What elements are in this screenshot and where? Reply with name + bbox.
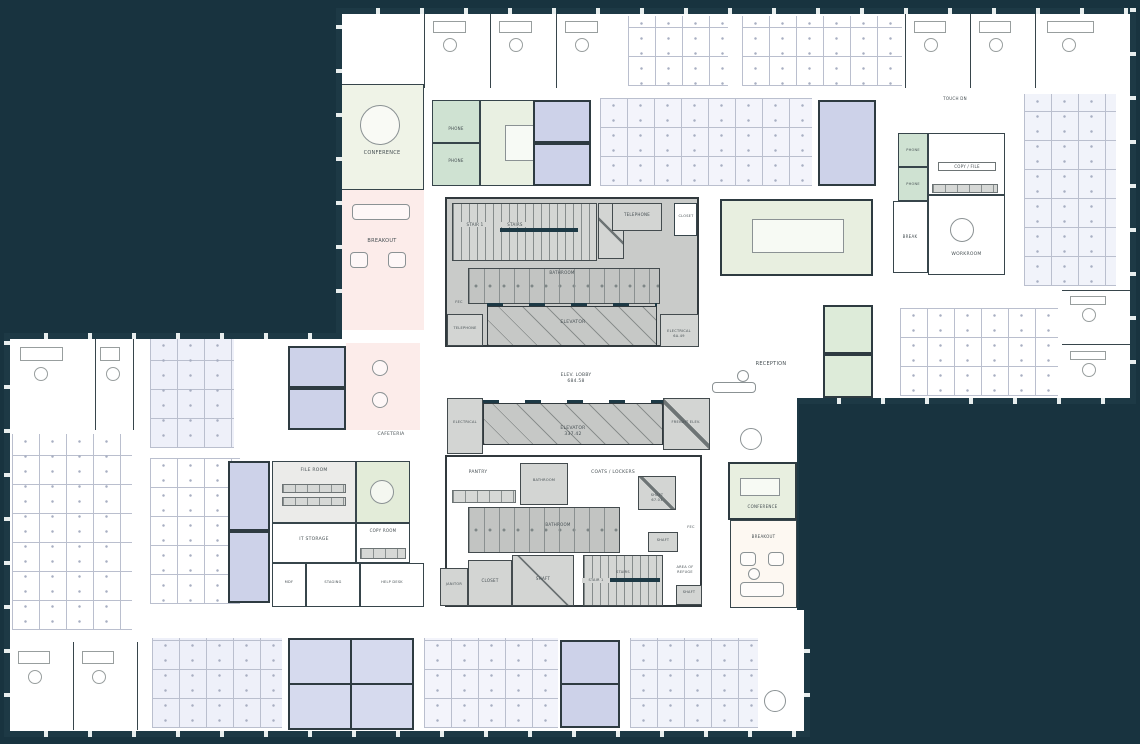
zone-cafeteria [346,343,420,430]
label-stair1-upper: STAIR 1 [458,222,492,227]
label-breakout-tl: BREAKOUT [340,238,424,245]
label-phone-4: PHONE [896,182,930,187]
label-shaft-se: SHAFT [672,590,706,595]
facade-right-upper [1130,8,1136,404]
desk-zone-right-col [1024,94,1116,286]
breakout-se-chair-2 [768,552,784,566]
desk-zone-top-a [628,16,728,86]
reception-sofa [712,382,756,393]
file-room-shelves-1 [282,484,346,493]
floor-plan-canvas: CONFERENCE BREAKOUT PHONE PHONE TOUCH DN… [0,0,1140,744]
label-shaft-large: SHAFT [512,576,574,581]
label-staging: STAGING [304,580,362,585]
room-shaft-se [676,585,702,605]
cafeteria-table-1 [372,360,388,376]
facade-top-left-wing [4,333,342,339]
label-fec-lower: FEC [682,525,700,530]
desk-zone-bottom-1 [152,638,282,728]
facade-top [336,8,1136,14]
bathroom-band-lower [468,507,620,553]
label-file-room: FILE ROOM [272,468,356,474]
office-bottom-left-2 [74,642,138,730]
label-electrical-west: ELECTRICAL [442,420,488,425]
stair-upper-landing [500,228,578,232]
label-workroom: WORKROOM [928,252,1005,258]
label-cafeteria: CAFETERIA [356,432,426,438]
label-reception: RECEPTION [740,361,802,368]
room-bathroom-small [520,463,568,505]
label-shaft-east: SHAFT [645,538,681,543]
label-closet-upper: CLOSET [671,214,701,219]
desk-zone-bottom-2 [424,638,558,728]
copy-room-counter [360,548,406,559]
label-help-desk: HELP DESK [358,580,426,585]
room-phone-2 [432,143,480,186]
desk-zone-left-edge [12,434,132,630]
reception-table [737,370,749,382]
desk-zone-right-low [900,308,1058,396]
office-top-6 [1035,14,1130,88]
desk-zone-mid-top [600,98,812,186]
label-mdf: MDF [270,580,308,585]
breakout-se-sofa [740,582,784,597]
pantry-counter [452,490,516,503]
label-elev-lobby: ELEV. LOBBY684.58 [536,361,616,397]
label-telephone-west: TELEPHONE [443,326,487,331]
table-bottom-right [764,690,786,712]
stair-upper [452,203,597,261]
desk-zone-bottom-3 [630,638,758,728]
conference-table-round [360,105,400,145]
facade-left-upper [336,8,342,333]
office-top-1 [424,14,490,88]
office-right-1 [1062,290,1132,344]
label-freight-elev: FREIGHT ELEV. [658,420,714,425]
room-janitor [440,568,468,606]
label-copy-room: COPY ROOM [353,528,413,533]
office-right-2 [1062,344,1132,400]
room-staging [306,563,360,607]
elevator-doors-lower [483,400,663,403]
label-fec-upper: FEC [450,300,468,305]
desk-zone-left-a [150,338,234,448]
room-mdf [272,563,306,607]
label-elevator-upper: ELEVATOR [528,320,618,326]
label-touch-dn: TOUCH DN [920,96,990,101]
label-stairs-upper: STAIRS [498,222,532,227]
label-elevator-lower: ELEVATOR337.42 [528,414,618,450]
file-room-shelves-2 [282,497,346,506]
office-block-wall-h [288,683,414,685]
label-bathroom-upper: BATHROOM [532,270,592,275]
label-phone-1: PHONE [432,126,480,131]
room-closet-upper [674,203,697,236]
room-phone-1 [432,100,480,143]
label-bathroom-lower: BATHROOM [528,522,588,527]
label-conference-se: CONFERENCE [728,504,797,509]
elevator-doors-upper [487,303,657,306]
label-coats-lockers: COATS / LOCKERS [570,470,656,476]
office-top-2 [490,14,556,88]
office-bottom-left-1 [10,642,74,730]
label-stair1-lower: STAIR 1 [582,578,610,583]
facade-right-lower [804,610,810,737]
breakout-se-chair-1 [740,552,756,566]
office-west-2 [96,338,134,430]
label-bathroom-small: BATHROOM [517,478,571,483]
label-conference-tl: CONFERENCE [340,150,424,157]
room-office-blue-caf-2 [288,388,346,430]
label-closet-lower: CLOSET [464,578,516,583]
label-pantry: PANTRY [450,470,506,476]
desk-zone-top-b [742,16,902,86]
breakout-sofa [352,204,410,220]
table-se-nook [740,428,762,450]
room-office-blue-caf-1 [288,346,346,388]
label-electrical-upper: ELECTRICAL6A.49 [657,320,701,348]
breakout-chair-1 [350,252,368,268]
facade-bottom-lower [4,731,810,737]
label-telephone-upper: TELEPHONE [610,212,664,217]
conference-se-table [740,478,780,496]
breakout-chair-2 [388,252,406,268]
label-shaft-ne: SHAFT67.01 [635,484,679,512]
facade-left-lower [4,333,10,737]
room-electrical-west [447,398,483,454]
office-top-3 [556,14,622,88]
label-phone-2: PHONE [432,158,480,163]
cafeteria-table-2 [372,392,388,408]
office-top-5 [970,14,1035,88]
label-copy-file: COPY / FILE [938,162,996,171]
label-stairs-lower: STAIRS [608,570,638,575]
room-office-blue-top-2 [533,143,591,186]
office-top-4 [905,14,970,88]
label-area-of-refuge: AREA OFREFUGE [662,556,708,584]
room-help-desk [360,563,424,607]
room-office-blue-top-1 [533,100,591,143]
workroom-table [950,218,974,242]
desk-zone-left-b [150,458,240,604]
room-office-blue-file-2 [228,531,270,603]
label-phone-3: PHONE [896,148,930,153]
breakout-se-table [748,568,760,580]
label-it-storage: IT STORAGE [272,537,356,543]
meeting-table-file [370,480,394,504]
room-office-blue-file-1 [228,461,270,531]
room-huddle-2 [823,354,873,398]
facade-bottom-right-wing [797,398,1136,404]
facade-notch [797,404,810,610]
room-office-blue-top-3 [818,100,876,186]
room-huddle-1 [823,305,873,354]
copy-file-counter [932,184,998,193]
boardroom-table [752,219,844,253]
office-pair-wall [560,683,620,685]
label-break: BREAK [891,234,929,239]
label-breakout-se: BREAKOUT [730,534,797,539]
office-west-1 [10,338,96,430]
